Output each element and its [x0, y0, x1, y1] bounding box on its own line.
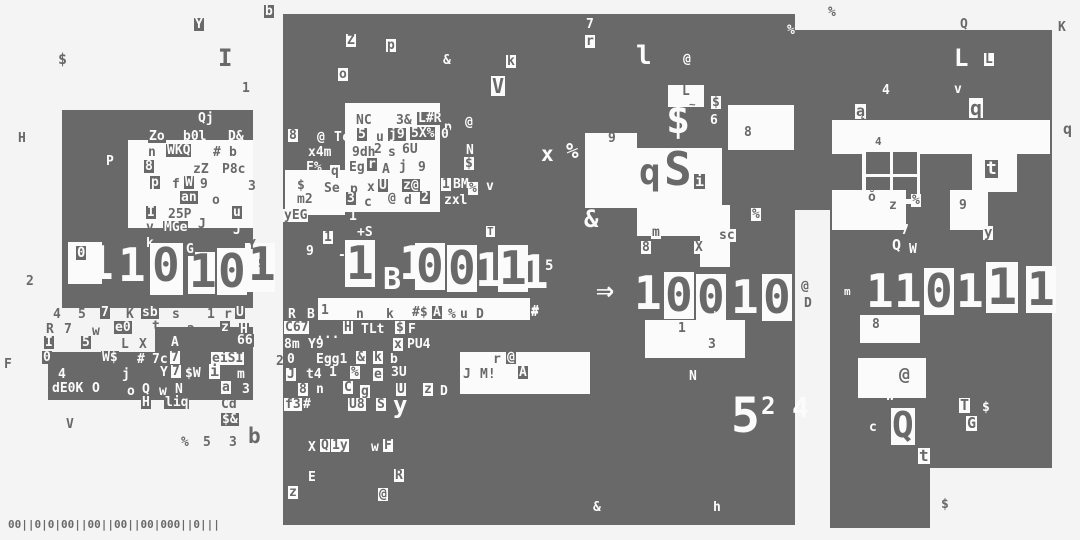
glyph: @ [464, 116, 474, 129]
glyph: 3& [396, 114, 412, 127]
glyph: 1 [189, 248, 217, 295]
glyph: c [364, 196, 372, 209]
glyph: 4 [53, 308, 61, 321]
glyph: 6 [428, 368, 436, 381]
block [950, 190, 988, 230]
glyph: U [378, 179, 388, 192]
glyph: 0 [76, 246, 86, 260]
glyph: 1 [118, 242, 146, 289]
glyph: o [127, 385, 135, 398]
glyph: Se [324, 182, 340, 195]
glyph: 1 [986, 262, 1018, 313]
glyph: 4 [882, 84, 890, 97]
glyph: z [288, 486, 298, 499]
glyph: #$ [412, 306, 428, 319]
glyph: 7 [901, 224, 909, 237]
glyph: 9 [959, 199, 967, 212]
block [830, 495, 930, 528]
glyph: 6 [709, 114, 719, 127]
glyph: n [316, 383, 324, 396]
glyph: m [237, 368, 245, 381]
glyph: 4 [792, 394, 809, 423]
glyph: s [172, 308, 180, 321]
glyph: $ [297, 179, 305, 192]
glyph: iv [466, 323, 482, 336]
glyph: b [229, 146, 237, 159]
glyph: j [122, 368, 130, 381]
glyph: 1 [956, 268, 984, 315]
glyph: 2 [374, 143, 382, 156]
glyph: 0 [447, 245, 477, 292]
glyph: @ [387, 192, 397, 205]
glyph: H [343, 321, 353, 334]
glyph: liq [164, 396, 189, 409]
glyph: Y [160, 366, 168, 379]
block [645, 320, 745, 358]
glyph: $ [941, 498, 949, 511]
glyph: NC [356, 114, 372, 127]
glyph: t4 [306, 368, 322, 381]
glyph: 5 [78, 308, 86, 321]
glyph: k [373, 351, 383, 364]
glyph: r [493, 353, 501, 366]
glyph: x [541, 144, 554, 165]
glyph: W [886, 390, 894, 403]
glyph: v [146, 221, 154, 234]
glyph: j9 [388, 128, 406, 141]
glyph: u [232, 206, 242, 219]
glyph: # [303, 398, 311, 411]
glyph: x [393, 338, 403, 351]
glyph: 5 [81, 336, 91, 349]
glyph: 0 [152, 242, 180, 289]
glyph: 7 [100, 306, 110, 319]
glyph: Q [892, 238, 901, 253]
glyph: TCa [65, 353, 88, 366]
glyph: P [106, 155, 114, 168]
glyph: Y [194, 18, 204, 31]
glyph: 8 [641, 241, 651, 254]
glyph: sb [141, 306, 159, 319]
glyph: h [713, 501, 721, 514]
glyph: 8 [298, 383, 308, 396]
glyph: O [446, 338, 454, 351]
glyph: @ [683, 53, 691, 66]
glyph: C [343, 381, 353, 394]
glyph: Zo [148, 130, 166, 143]
glyph: x4m [308, 146, 331, 159]
glyph: 1 [86, 240, 114, 287]
glyph: n [356, 308, 364, 321]
glyph: 4 [58, 368, 66, 381]
glyph: Cd [221, 398, 237, 411]
glyph: & [443, 54, 451, 67]
glyph: U [235, 306, 245, 319]
block [795, 30, 830, 210]
glyph: J [198, 218, 206, 231]
glyph: & [593, 501, 601, 514]
glyph: M! [480, 368, 496, 381]
glyph: I [44, 336, 54, 349]
glyph: q [969, 98, 983, 118]
glyph: T [959, 398, 970, 413]
glyph: r [367, 158, 377, 171]
glyph: @ [898, 366, 911, 384]
glyph: P8c [222, 163, 245, 176]
glyph: PU4 [407, 338, 430, 351]
glyph: 0 [440, 128, 450, 141]
glyph: 5 [545, 259, 553, 273]
glyph: I [218, 46, 232, 70]
glyph: $ [58, 52, 67, 67]
glyph: Z [473, 338, 481, 351]
glyph: 66 [236, 334, 254, 347]
glyph: b [264, 5, 274, 18]
glyph: V [66, 418, 74, 431]
block [830, 30, 1052, 495]
glyph: L [121, 338, 129, 351]
glyph: 3 [242, 383, 250, 396]
glyph: 1 [248, 241, 276, 288]
glyph: 8 [744, 126, 752, 139]
glyph: z [889, 199, 897, 212]
glyph: % [787, 24, 795, 37]
glyph: $ [395, 321, 405, 334]
glyph: 7 [586, 18, 594, 31]
glyph: q [330, 165, 340, 178]
glyph: O [92, 382, 100, 395]
glyph: 1 [323, 231, 333, 244]
glyph: Qj [198, 112, 214, 125]
glyph: 0 [287, 353, 295, 366]
glyph: B [307, 308, 315, 321]
glyph: p [386, 39, 396, 52]
glyph: x [367, 181, 375, 194]
glyph: & [356, 351, 366, 364]
glyph: F [4, 358, 12, 371]
glyph: A [382, 163, 390, 176]
block [860, 315, 920, 343]
glyph: e [373, 368, 383, 381]
glyph: I [146, 206, 156, 219]
glyph: 5X% [410, 127, 435, 140]
glyph: A [432, 306, 442, 319]
glyph: 7 [64, 323, 72, 336]
glyph: @ [317, 131, 325, 144]
glyph: & [584, 207, 598, 231]
glyph: b0l [183, 130, 206, 143]
glyph: s [388, 146, 396, 159]
glyph: 9 [418, 161, 426, 174]
glyph: 3U [390, 366, 408, 379]
glyph: v [954, 83, 962, 96]
glyph: i [209, 364, 220, 379]
glyph: J [233, 224, 241, 237]
glyph: n [148, 146, 156, 159]
glyph: 1 [866, 268, 894, 315]
glyph: z [423, 383, 433, 396]
glyph: @ [801, 280, 809, 293]
glyph: D [476, 308, 484, 321]
glyph: 7 [170, 351, 180, 364]
glyph: q [1063, 122, 1072, 137]
glyph: z [220, 321, 230, 334]
glyph: t [918, 448, 930, 464]
glyph: % [828, 6, 836, 19]
glyph: @ [378, 488, 388, 501]
glyph: Z [346, 34, 356, 47]
glyph: f [172, 178, 180, 191]
glyph: 0 [664, 272, 694, 319]
glyph: 1 [634, 270, 662, 317]
glyph: # [137, 353, 145, 366]
glyph: 40& [195, 337, 218, 350]
glyph: 8 [872, 318, 880, 331]
glyph: 2 [187, 325, 195, 338]
glyph: zxl [444, 194, 467, 207]
glyph: dE0K [52, 382, 83, 395]
glyph: c [869, 421, 877, 434]
glyph: 0 [696, 274, 726, 321]
glyph: W [184, 176, 194, 189]
glyph: zZ [193, 163, 209, 176]
glyph: Eg [349, 161, 365, 174]
glyph: y [393, 393, 407, 417]
glyph: Tc [334, 131, 350, 144]
glyph: $ [464, 157, 474, 170]
glyph: 1 [731, 274, 759, 321]
glyph: 1 [441, 178, 451, 191]
glyph: 0 [762, 274, 792, 321]
glyph: 9 [200, 178, 208, 191]
glyph: 9 [306, 245, 314, 258]
glyph: # [213, 146, 221, 159]
glyph: BM [452, 178, 470, 191]
glyph: 8 [144, 160, 154, 173]
glyph: J [286, 368, 296, 381]
glyph: r [585, 35, 595, 48]
glyph: w [92, 325, 100, 338]
status-bar: 00||0|0|00||00||00||00|000||0||| [8, 518, 220, 531]
glyph: 1 [1026, 266, 1056, 313]
glyph: 9 [608, 132, 616, 145]
glyph: an [180, 191, 198, 204]
glyph: TLt [361, 323, 384, 336]
glyph: U8 [348, 398, 366, 411]
glyph: 8 [288, 129, 298, 142]
glyph: j [399, 160, 407, 173]
glyph: $ [711, 96, 721, 109]
glyph: D [804, 297, 812, 310]
glyph: $W [185, 367, 201, 380]
glyph: 0 [924, 268, 954, 315]
glyph: 0 [217, 248, 247, 295]
glyph: $ [666, 100, 690, 141]
glyph: WKQ [166, 144, 191, 157]
glyph: T [486, 226, 495, 237]
glyph: 1 [894, 268, 922, 315]
glyph: S [376, 398, 386, 411]
glyph: v [486, 180, 494, 193]
glyph: w [714, 308, 721, 319]
glyph: % [468, 182, 478, 195]
glyph: 2 [761, 394, 775, 418]
glyph: % [181, 436, 189, 449]
glyph: f3 [284, 398, 302, 411]
glyph: 2 [26, 275, 34, 288]
glyph: i [694, 174, 705, 189]
glyph: 1 [345, 240, 375, 287]
glyph: V [491, 76, 505, 96]
glyph: N [688, 370, 698, 383]
glyph: Q [960, 18, 968, 31]
glyph: o [338, 68, 348, 81]
glyph: W [909, 243, 917, 256]
glyph: sc [718, 229, 736, 242]
block [728, 105, 794, 150]
glyph: 1 [207, 308, 215, 321]
glyph: F [408, 323, 416, 336]
glyph: yEG [283, 209, 308, 222]
glyph: 2 [420, 191, 430, 204]
glyph: 7 [171, 365, 181, 378]
glyph: C67 [284, 321, 309, 334]
glyph: X [139, 338, 147, 351]
glyph: o [212, 194, 220, 207]
glyph: 1 [328, 366, 338, 379]
glyph: 1 [242, 82, 250, 95]
glyph: Q [320, 439, 330, 452]
glyph: 5 [203, 436, 211, 449]
glyph: b [248, 426, 261, 447]
glyph: a [221, 381, 231, 394]
glyph: z@ [402, 179, 420, 192]
glyph: t [985, 160, 998, 178]
glyph: 5 [357, 128, 367, 141]
ascii-art-canvas: Yb$I1H2FV%53bQjZob0lD&nWKQ#b8zZP8cpfW93a… [0, 0, 1080, 540]
glyph: H [18, 132, 26, 145]
glyph: 2 [276, 355, 284, 368]
glyph: S [664, 146, 692, 193]
glyph: L#R [417, 112, 442, 125]
glyph: % [448, 308, 456, 321]
glyph: l [636, 43, 652, 70]
glyph: F% [306, 161, 322, 174]
glyph: w [371, 441, 379, 454]
glyph: 3 [708, 338, 716, 351]
glyph: 6U [402, 143, 418, 156]
glyph: 0 [415, 243, 445, 290]
glyph: t [152, 320, 160, 333]
glyph: X [694, 241, 704, 254]
glyph: % [566, 141, 579, 162]
glyph: m [651, 226, 661, 239]
glyph: 1 [678, 322, 686, 335]
glyph: 5 [731, 392, 760, 441]
glyph: 0 [42, 351, 52, 364]
glyph: J [463, 368, 471, 381]
glyph: $ [982, 401, 990, 414]
glyph: y [983, 226, 993, 240]
glyph: k [386, 308, 394, 321]
glyph: 1 [320, 304, 330, 317]
glyph: u [460, 308, 468, 321]
glyph: 4 [875, 136, 882, 147]
block [866, 152, 890, 174]
glyph: Y9 [308, 338, 324, 351]
glyph: K [1058, 21, 1066, 34]
glyph: A [518, 366, 528, 379]
glyph: ą [855, 104, 866, 119]
glyph: D& [228, 130, 244, 143]
glyph: 1y [331, 439, 349, 452]
glyph: # [531, 305, 539, 318]
glyph: R [394, 469, 404, 482]
glyph: L [954, 46, 968, 70]
glyph: MGe [163, 221, 188, 234]
glyph: d [404, 194, 412, 207]
glyph: 1 [349, 210, 357, 223]
glyph: p [150, 176, 160, 189]
glyph: G [966, 416, 977, 431]
glyph: @ [506, 351, 516, 364]
glyph: 3 [248, 180, 256, 193]
glyph: % [911, 194, 921, 207]
glyph: q [639, 155, 661, 192]
glyph: A [170, 336, 180, 349]
block [893, 152, 917, 174]
glyph: X [308, 441, 316, 454]
glyph: E [308, 471, 316, 484]
glyph: Q [891, 408, 915, 445]
glyph: e0 [114, 321, 132, 334]
glyph: L [984, 53, 994, 66]
glyph: ŏ [867, 191, 877, 204]
glyph: % [751, 208, 761, 221]
glyph: % [350, 366, 360, 379]
glyph: D [440, 385, 448, 398]
glyph: 8m [284, 338, 300, 351]
glyph: m [844, 286, 851, 297]
glyph: F [383, 439, 393, 452]
glyph: W$ [101, 351, 119, 364]
glyph: 3 [229, 436, 237, 449]
glyph: ⇒ [596, 276, 614, 307]
glyph: H [141, 396, 151, 409]
glyph: 3 [346, 192, 356, 205]
glyph: m2 [297, 193, 313, 206]
glyph: $& [221, 413, 239, 426]
glyph: k [506, 55, 516, 68]
